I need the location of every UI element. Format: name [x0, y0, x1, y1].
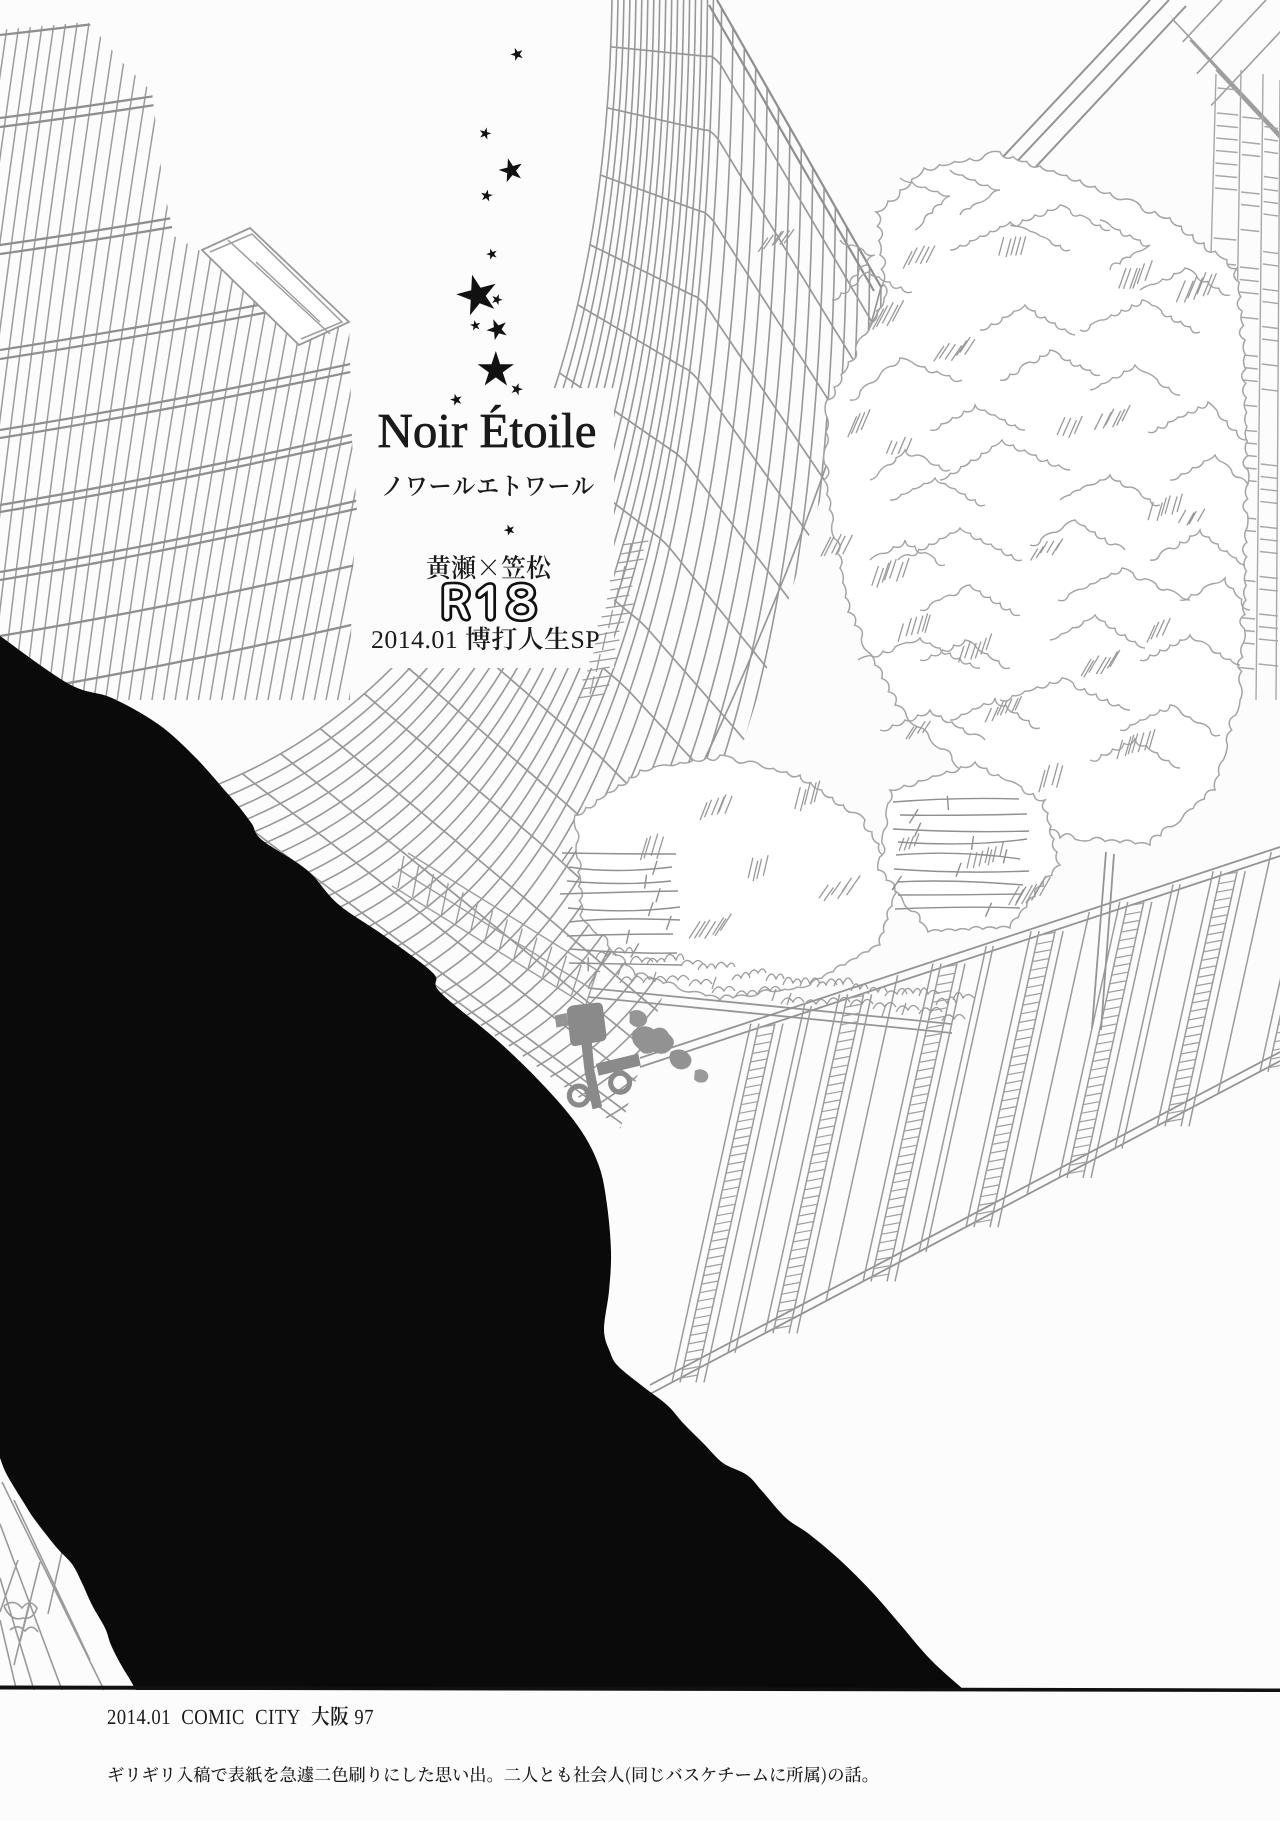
svg-text:Noir Étoile: Noir Étoile: [377, 403, 596, 458]
